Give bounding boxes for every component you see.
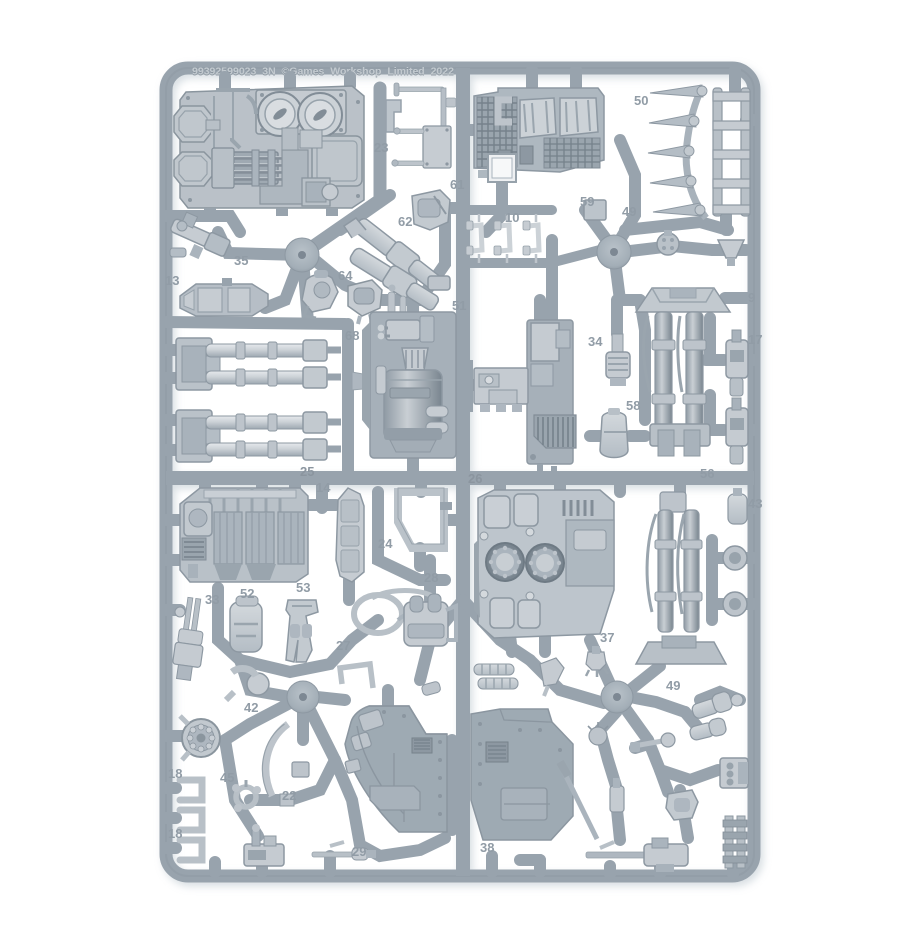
svg-text:43: 43 (748, 496, 762, 511)
svg-text:50: 50 (634, 93, 648, 108)
svg-text:68: 68 (345, 328, 359, 343)
svg-text:10: 10 (505, 210, 519, 225)
svg-text:99392599023 3N ©Games Works: 99392599023 3N ©Games Workshop Limited 2… (192, 65, 454, 77)
svg-text:56: 56 (700, 466, 714, 481)
svg-text:37: 37 (600, 630, 614, 645)
svg-text:22: 22 (282, 788, 296, 803)
svg-text:13: 13 (165, 273, 179, 288)
svg-text:23: 23 (374, 140, 388, 155)
svg-text:18: 18 (168, 826, 182, 841)
svg-text:49: 49 (666, 678, 680, 693)
svg-text:58: 58 (626, 398, 640, 413)
svg-text:24: 24 (378, 536, 393, 551)
svg-text:27: 27 (336, 638, 350, 653)
svg-text:59: 59 (580, 194, 594, 209)
svg-text:62: 62 (398, 214, 412, 229)
svg-text:51: 51 (452, 298, 466, 313)
svg-text:61: 61 (450, 177, 464, 192)
svg-text:26: 26 (468, 471, 482, 486)
svg-text:17: 17 (748, 332, 762, 347)
svg-text:42: 42 (244, 700, 258, 715)
svg-text:33: 33 (205, 592, 219, 607)
svg-text:29: 29 (352, 844, 366, 859)
svg-text:38: 38 (480, 840, 494, 855)
svg-text:9: 9 (748, 290, 755, 305)
svg-text:28: 28 (424, 570, 438, 585)
svg-text:52: 52 (240, 586, 254, 601)
svg-text:53: 53 (296, 580, 310, 595)
svg-text:45: 45 (220, 770, 234, 785)
svg-text:25: 25 (300, 464, 314, 479)
svg-text:34: 34 (588, 334, 603, 349)
svg-text:35: 35 (234, 253, 248, 268)
svg-text:64: 64 (338, 268, 353, 283)
svg-text:18: 18 (168, 766, 182, 781)
svg-text:49: 49 (622, 204, 636, 219)
svg-text:14: 14 (316, 480, 331, 495)
